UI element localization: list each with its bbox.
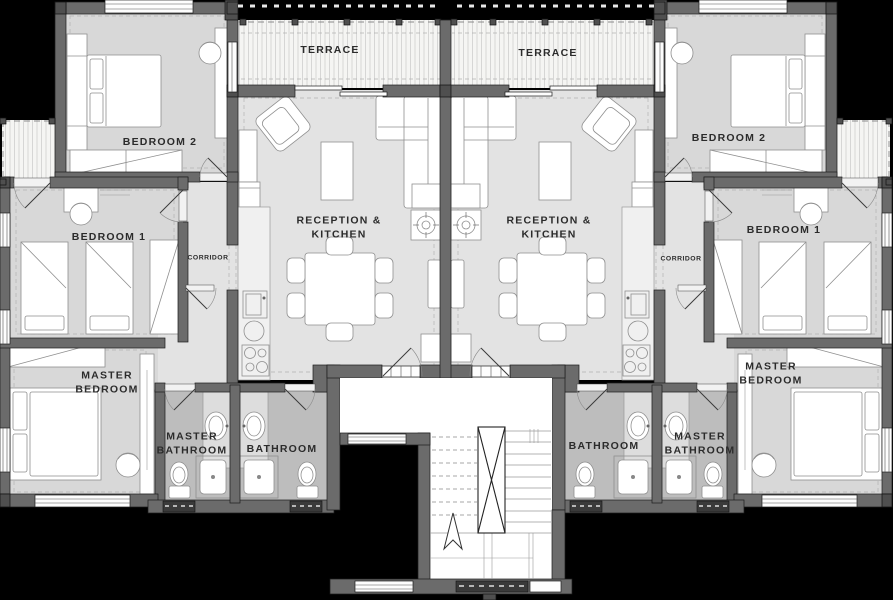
room-label-reception-left: RECEPTION & KITCHEN bbox=[283, 214, 395, 241]
room-label-master-bedroom-left: MASTER BEDROOM bbox=[65, 369, 149, 396]
floor-plan-drawing bbox=[0, 0, 893, 600]
room-label-master-bathroom-left: MASTER BATHROOM bbox=[144, 430, 240, 457]
room-label-bedroom2-left: BEDROOM 2 bbox=[123, 136, 197, 150]
room-label-terrace-right: TERRACE bbox=[518, 47, 577, 61]
room-label-master-bedroom-right: MASTER BEDROOM bbox=[729, 360, 813, 387]
stair-landing bbox=[340, 378, 552, 433]
room-label-reception-right: RECEPTION & KITCHEN bbox=[493, 214, 605, 241]
room-label-bathroom-left: BATHROOM bbox=[247, 443, 318, 457]
floor-plan: TERRACE BEDROOM 2 BEDROOM 1 CORRIDOR REC… bbox=[0, 0, 893, 600]
room-label-corridor-left: CORRIDOR bbox=[187, 255, 228, 264]
room-label-corridor-right: CORRIDOR bbox=[660, 256, 701, 265]
room-label-bathroom-right: BATHROOM bbox=[569, 440, 640, 454]
window-icon bbox=[348, 434, 406, 444]
room-label-bedroom1-right: BEDROOM 1 bbox=[747, 224, 821, 238]
room-label-terrace-left: TERRACE bbox=[300, 44, 359, 58]
room-label-bedroom1-left: BEDROOM 1 bbox=[72, 231, 146, 245]
window-icon bbox=[530, 581, 561, 592]
room-label-master-bathroom-right: MASTER BATHROOM bbox=[652, 430, 748, 457]
room-label-bedroom2-right: BEDROOM 2 bbox=[692, 132, 766, 146]
window-icon bbox=[355, 581, 413, 592]
